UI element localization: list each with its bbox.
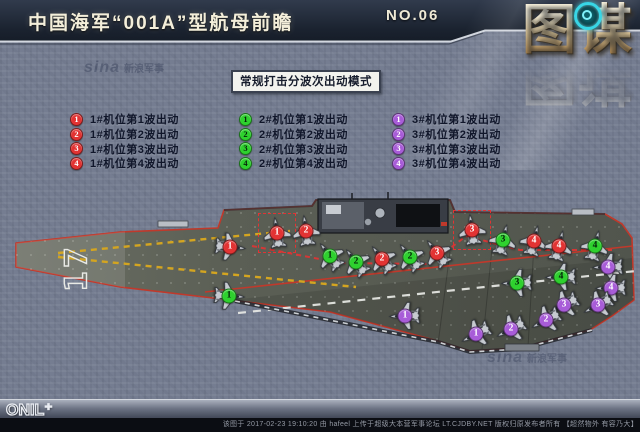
wave-number-badge: 2 [392, 128, 405, 141]
legend-item: 23#机位第2波出动 [392, 127, 501, 142]
legend-item: 22#机位第2波出动 [239, 127, 348, 142]
legend-item: 12#机位第1波出动 [239, 112, 348, 127]
issue-number: NO.06 [386, 7, 439, 24]
wave-number-badge: 4 [70, 157, 83, 170]
wave-number-badge: 2 [70, 128, 83, 141]
sina-logo: sina [487, 349, 523, 366]
legend-label: 3#机位第1波出动 [412, 111, 501, 127]
legend-label: 3#机位第4波出动 [412, 155, 501, 171]
wave-number-badge: 4 [392, 157, 405, 170]
legend-label: 1#机位第4波出动 [90, 155, 179, 171]
legend-item: 33#机位第3波出动 [392, 141, 501, 156]
wave-number-badge: 1 [239, 113, 252, 126]
legend-label: 3#机位第2波出动 [412, 126, 501, 142]
mode-title-box: 常规打击分波次出动模式 [231, 70, 381, 93]
legend-label: 2#机位第3波出动 [259, 141, 348, 157]
legend-label: 1#机位第3波出动 [90, 141, 179, 157]
legend-item: 32#机位第3波出动 [239, 141, 348, 156]
brand-logo-reflection: 图谋 [522, 51, 634, 108]
footer-strip: ONIL⁺ [0, 399, 640, 419]
target-reticle-icon [574, 2, 602, 30]
source-caption: 该图于 2017-02-23 19:10:20 由 hafeel 上传于超级大本… [0, 418, 640, 432]
legend-group-2#: 12#机位第1波出动22#机位第2波出动32#机位第3波出动42#机位第4波出动 [239, 112, 348, 171]
wave-number-badge: 3 [239, 142, 252, 155]
page-title: 中国海军“001A”型航母前瞻 [28, 8, 293, 35]
legend-label: 3#机位第3波出动 [412, 141, 501, 157]
sina-watermark-deck: sina新浪军事 [487, 349, 567, 367]
legend-label: 1#机位第2波出动 [90, 126, 179, 142]
wave-number-badge: 1 [392, 113, 405, 126]
island-superstructure [318, 192, 448, 233]
wave-number-badge: 3 [70, 142, 83, 155]
legend-item: 43#机位第4波出动 [392, 156, 501, 171]
wave-number-badge: 3 [392, 142, 405, 155]
hull-number: 17 [60, 244, 95, 292]
legend-label: 2#机位第4波出动 [259, 155, 348, 171]
infographic-page: 中国海军“001A”型航母前瞻 NO.06 图谋 图谋 sina新浪军事 常规打… [0, 0, 640, 432]
legend-label: 2#机位第1波出动 [259, 111, 348, 127]
legend-item: 21#机位第2波出动 [70, 127, 179, 142]
legend-group-3#: 13#机位第1波出动23#机位第2波出动33#机位第3波出动43#机位第4波出动 [392, 112, 501, 171]
legend-label: 2#机位第2波出动 [259, 126, 348, 142]
wave-number-badge: 4 [239, 157, 252, 170]
legend-item: 42#机位第4波出动 [239, 156, 348, 171]
wave-number-badge: 2 [239, 128, 252, 141]
wave-number-badge: 1 [70, 113, 83, 126]
legend-item: 31#机位第3波出动 [70, 141, 179, 156]
legend-group-1#: 11#机位第1波出动21#机位第2波出动31#机位第3波出动41#机位第4波出动 [70, 112, 179, 171]
legend-item: 41#机位第4波出动 [70, 156, 179, 171]
legend-label: 1#机位第1波出动 [90, 111, 179, 127]
designer-logo: ONIL⁺ [6, 400, 53, 420]
brand-logo: 图谋 图谋 [522, 2, 634, 107]
sina-watermark-top: sina新浪军事 [84, 59, 164, 77]
sina-logo: sina [84, 59, 120, 76]
legend-item: 11#机位第1波出动 [70, 112, 179, 127]
legend-item: 13#机位第1波出动 [392, 112, 501, 127]
